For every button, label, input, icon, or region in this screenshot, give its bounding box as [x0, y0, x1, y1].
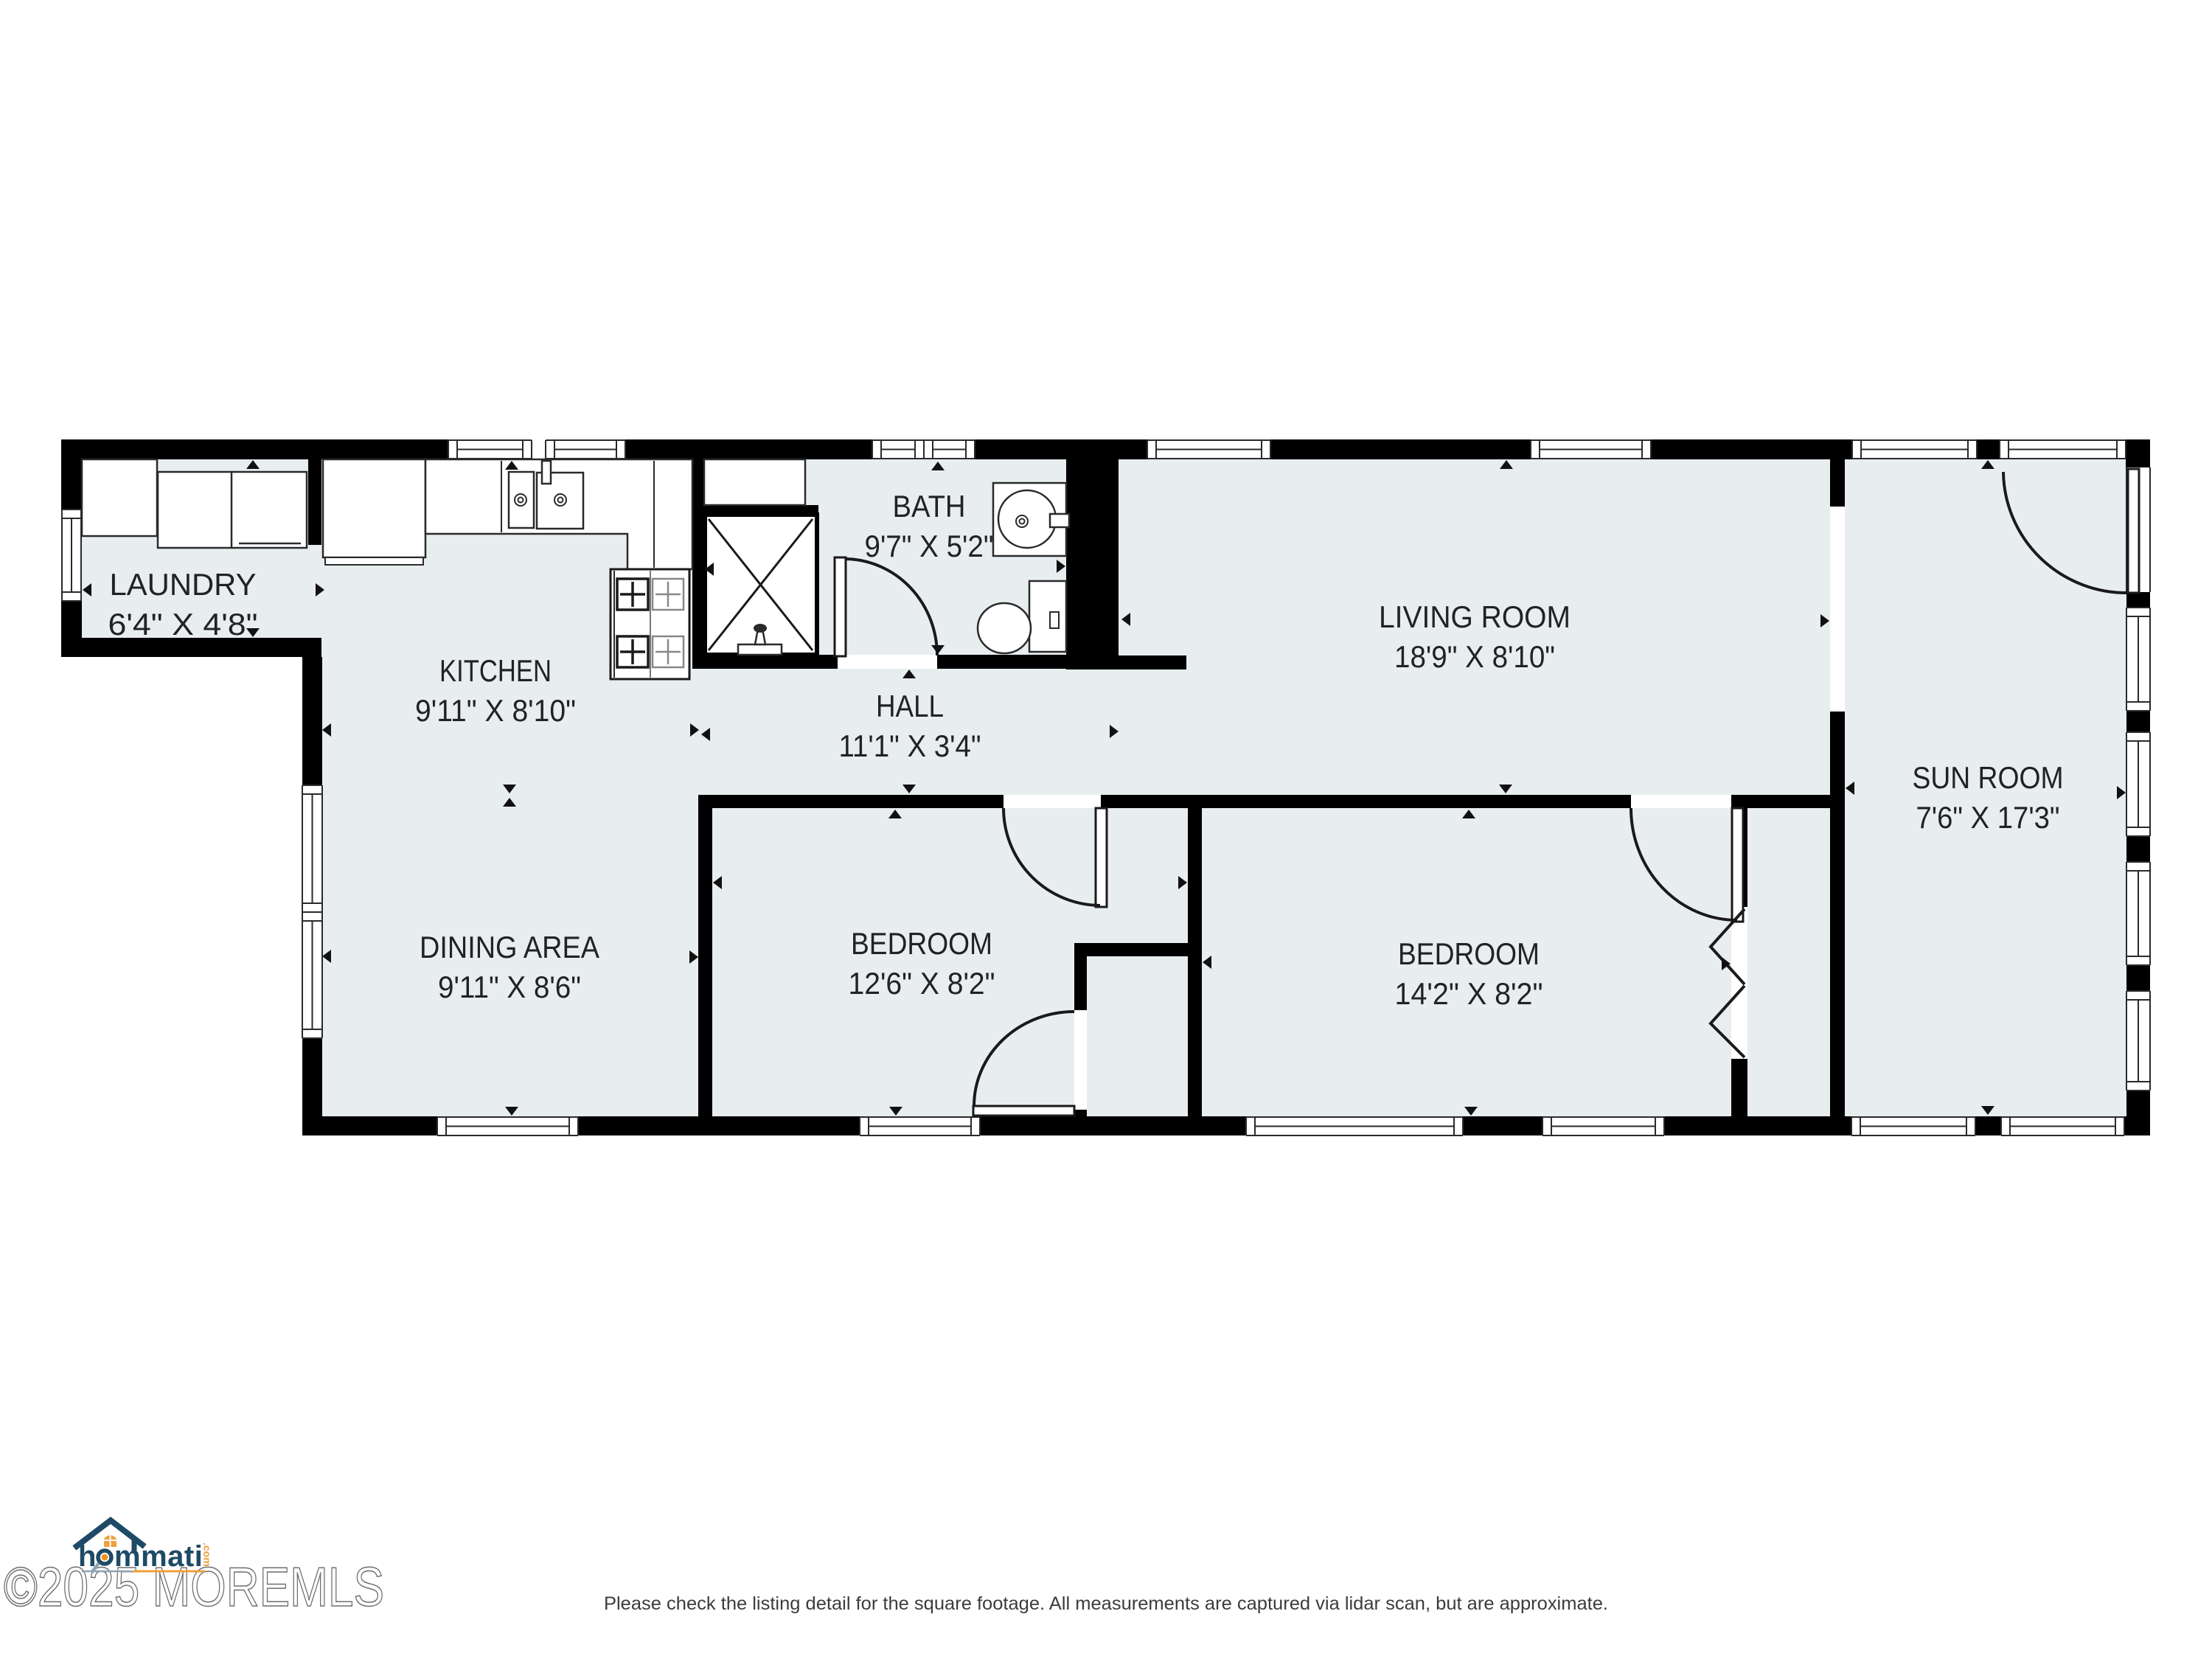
svg-text:LIVING ROOM: LIVING ROOM	[1379, 599, 1571, 634]
svg-text:KITCHEN: KITCHEN	[439, 653, 552, 688]
svg-text:9'11" X 8'6": 9'11" X 8'6"	[438, 970, 581, 1004]
svg-text:Please check the listing detai: Please check the listing detail for the …	[604, 1593, 1608, 1614]
svg-text:18'9" X 8'10": 18'9" X 8'10"	[1394, 639, 1555, 674]
svg-text:BATH: BATH	[893, 489, 966, 524]
svg-text:LAUNDRY: LAUNDRY	[110, 567, 257, 602]
svg-text:mmati: mmati	[114, 1540, 203, 1573]
svg-text:9'7" X 5'2": 9'7" X 5'2"	[865, 529, 994, 563]
svg-text:HALL: HALL	[876, 689, 944, 723]
svg-text:6'4" X 4'8": 6'4" X 4'8"	[108, 607, 258, 641]
svg-text:12'6" X 8'2": 12'6" X 8'2"	[849, 966, 995, 1001]
svg-text:9'11" X 8'10": 9'11" X 8'10"	[415, 693, 576, 728]
svg-text:DINING AREA: DINING AREA	[420, 930, 599, 964]
svg-text:7'6" X 17'3": 7'6" X 17'3"	[1916, 800, 2060, 835]
svg-text:11'1" X 3'4": 11'1" X 3'4"	[839, 728, 981, 763]
svg-text:14'2" X 8'2": 14'2" X 8'2"	[1395, 976, 1543, 1011]
svg-text:SUN ROOM: SUN ROOM	[1913, 760, 2064, 795]
svg-text:BEDROOM: BEDROOM	[1398, 936, 1540, 971]
svg-text:.com: .com	[201, 1543, 213, 1567]
svg-text:BEDROOM: BEDROOM	[851, 926, 992, 961]
